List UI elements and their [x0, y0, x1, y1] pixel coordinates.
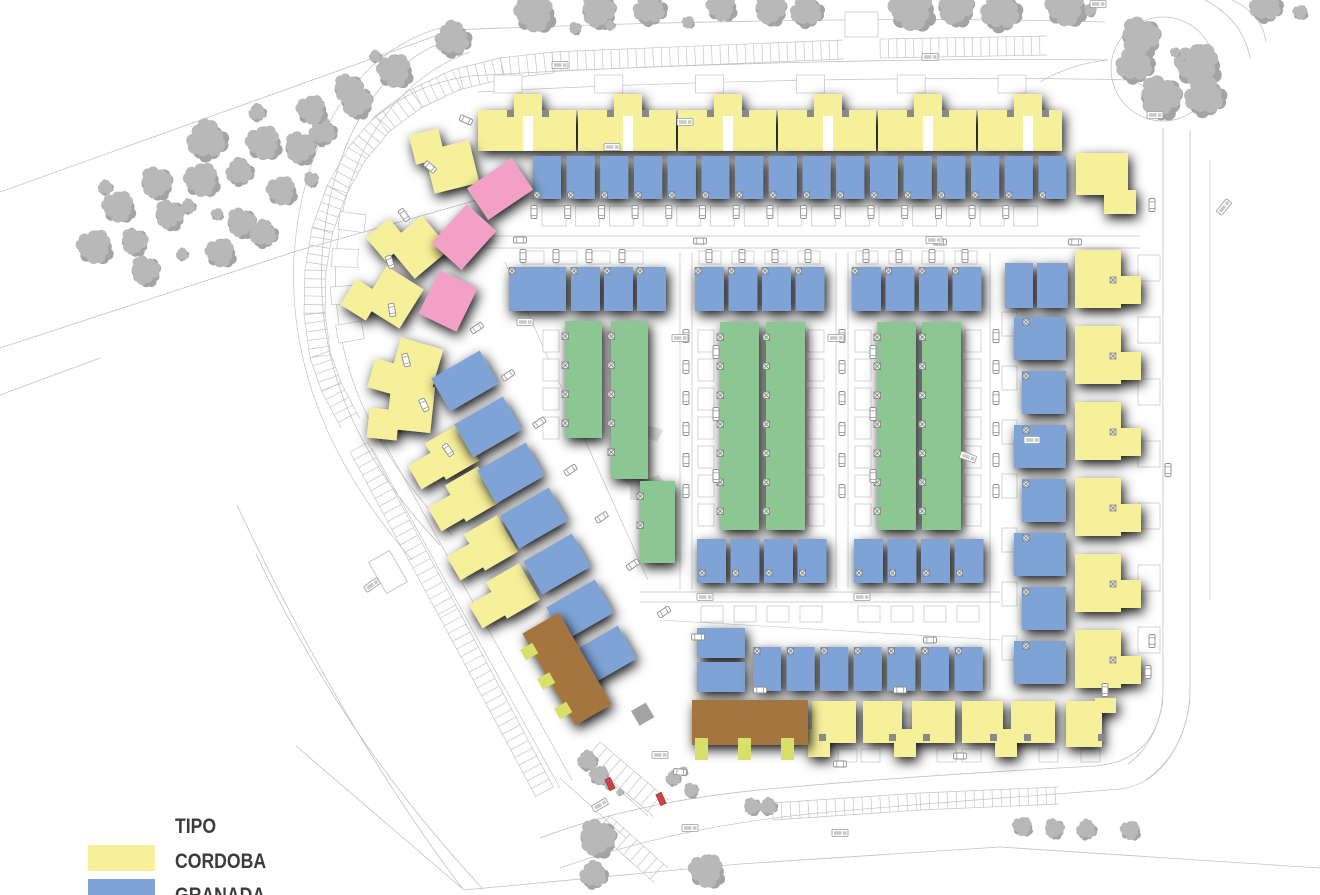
svg-text:TIPO: TIPO — [175, 814, 216, 838]
svg-text:GRANADA: GRANADA — [175, 883, 265, 895]
svg-text:CORDOBA: CORDOBA — [175, 849, 266, 873]
